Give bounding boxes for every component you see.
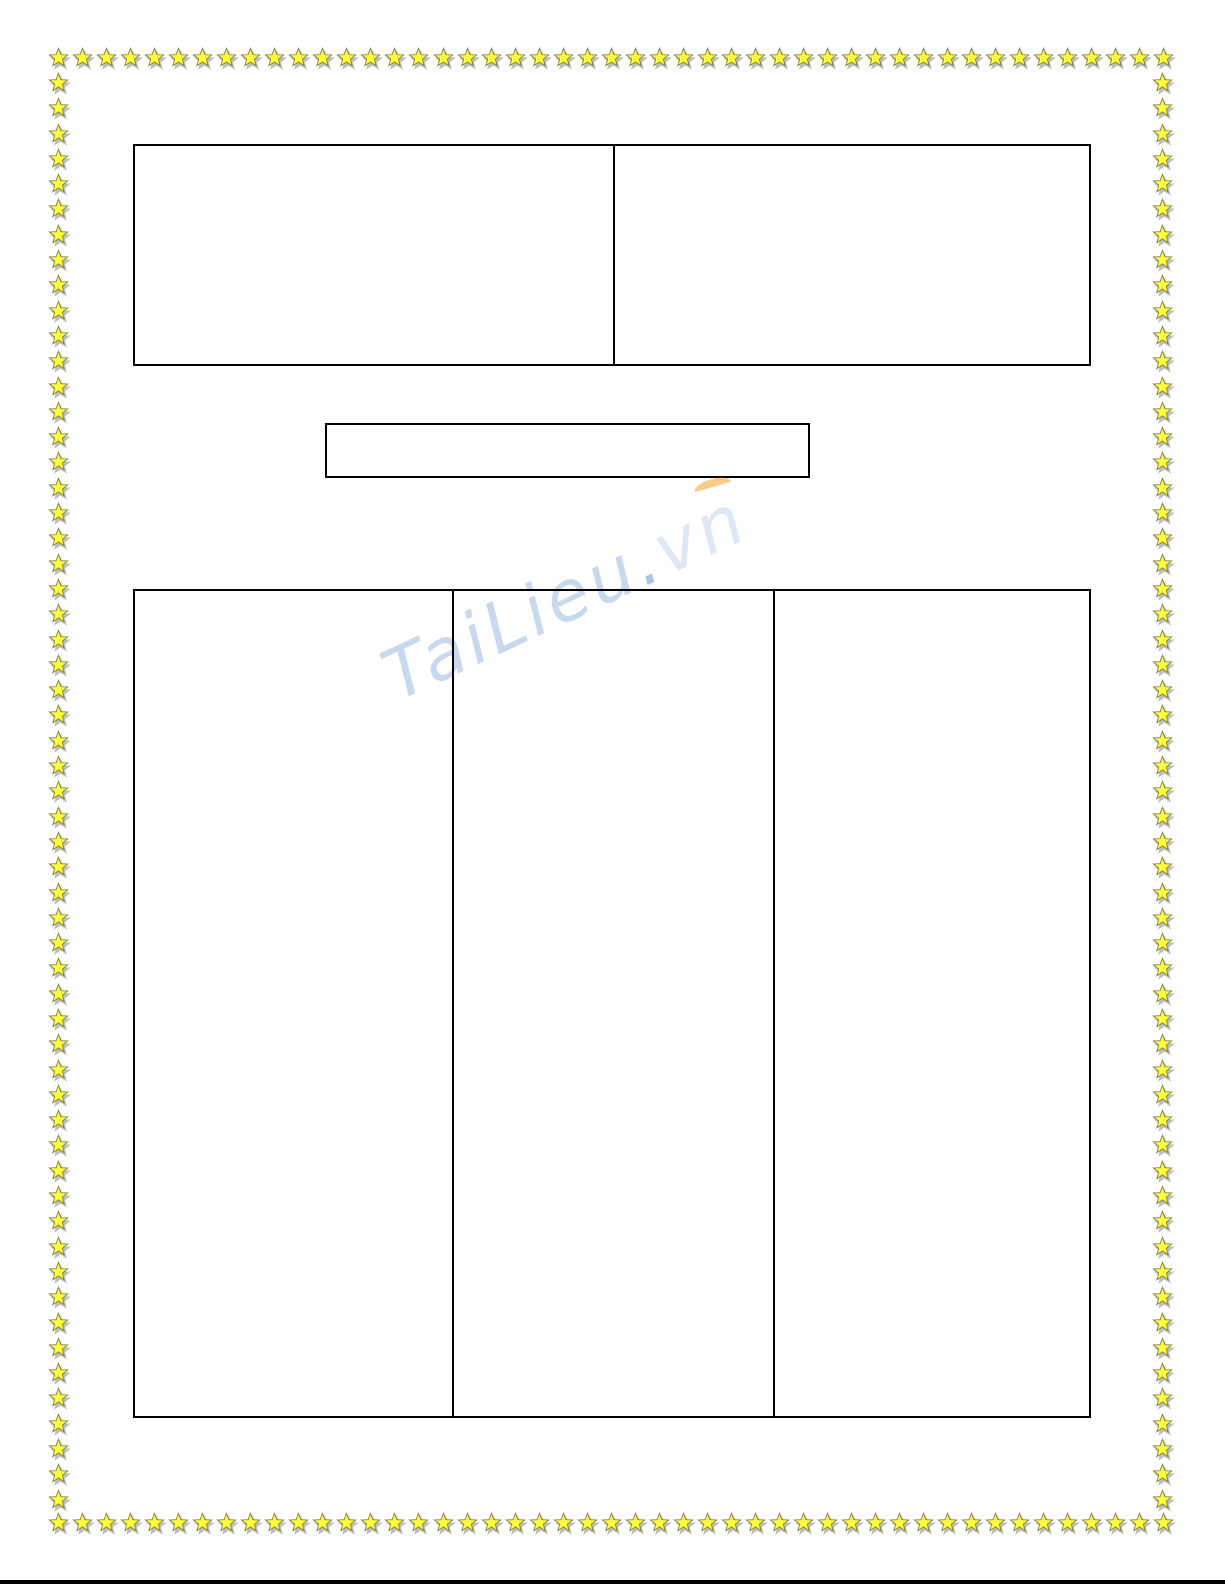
star-icon — [649, 47, 670, 68]
star-icon — [1152, 1337, 1173, 1358]
star-icon — [48, 629, 69, 650]
star-icon — [48, 1261, 69, 1282]
star-icon — [625, 1512, 646, 1533]
star-icon — [1152, 350, 1173, 371]
star-icon — [264, 47, 285, 68]
main-table-cell-2 — [454, 591, 775, 1416]
star-icon — [336, 1512, 357, 1533]
star-icon — [1152, 1362, 1173, 1383]
star-icon — [1152, 780, 1173, 801]
star-icon — [48, 1312, 69, 1333]
star-icon — [1152, 932, 1173, 953]
star-icon — [769, 47, 790, 68]
star-icon — [889, 1512, 910, 1533]
star-icon — [48, 1134, 69, 1155]
star-icon — [1129, 1512, 1150, 1533]
star-icon — [673, 1512, 694, 1533]
star-icon — [48, 173, 69, 194]
star-icon — [553, 1512, 574, 1533]
star-icon — [48, 1337, 69, 1358]
star-border-top — [48, 47, 1175, 68]
star-icon — [745, 1512, 766, 1533]
main-table — [133, 589, 1091, 1418]
star-icon — [889, 47, 910, 68]
star-icon — [192, 1512, 213, 1533]
star-icon — [529, 47, 550, 68]
star-icon — [48, 882, 69, 903]
star-icon — [48, 983, 69, 1004]
star-icon — [48, 704, 69, 725]
star-icon — [48, 1084, 69, 1105]
star-icon — [48, 932, 69, 953]
star-icon — [961, 47, 982, 68]
star-icon — [48, 1512, 69, 1533]
star-icon — [48, 679, 69, 700]
star-icon — [216, 47, 237, 68]
star-icon — [673, 47, 694, 68]
star-icon — [1152, 679, 1173, 700]
star-icon — [1152, 831, 1173, 852]
star-icon — [985, 47, 1006, 68]
star-icon — [1153, 47, 1174, 68]
star-icon — [48, 1210, 69, 1231]
star-icon — [48, 1033, 69, 1054]
header-table-cell-right — [615, 146, 1089, 364]
star-icon — [48, 350, 69, 371]
star-icon — [1152, 477, 1173, 498]
star-icon — [529, 1512, 550, 1533]
star-icon — [1152, 1387, 1173, 1408]
star-icon — [1152, 957, 1173, 978]
star-icon — [1152, 1438, 1173, 1459]
star-icon — [48, 957, 69, 978]
star-icon — [1152, 426, 1173, 447]
star-icon — [264, 1512, 285, 1533]
star-icon — [168, 47, 189, 68]
main-table-cell-3 — [775, 591, 1089, 1416]
star-icon — [1152, 376, 1173, 397]
star-icon — [1152, 325, 1173, 346]
star-icon — [649, 1512, 670, 1533]
star-icon — [1152, 1185, 1173, 1206]
star-icon — [841, 1512, 862, 1533]
star-icon — [288, 1512, 309, 1533]
star-icon — [48, 376, 69, 397]
star-icon — [577, 1512, 598, 1533]
star-icon — [1152, 123, 1173, 144]
star-icon — [1152, 1033, 1173, 1054]
star-icon — [1152, 97, 1173, 118]
star-icon — [1152, 1160, 1173, 1181]
star-icon — [48, 97, 69, 118]
star-icon — [433, 1512, 454, 1533]
star-icon — [1105, 1512, 1126, 1533]
star-icon — [48, 123, 69, 144]
star-icon — [1152, 502, 1173, 523]
star-icon — [360, 1512, 381, 1533]
star-icon — [1129, 47, 1150, 68]
header-table-cell-left — [135, 146, 615, 364]
star-icon — [505, 1512, 526, 1533]
star-icon — [48, 755, 69, 776]
star-icon — [48, 806, 69, 827]
star-icon — [1152, 704, 1173, 725]
star-icon — [192, 47, 213, 68]
star-icon — [48, 274, 69, 295]
star-icon — [48, 1185, 69, 1206]
main-table-cell-1 — [135, 591, 454, 1416]
star-icon — [384, 47, 405, 68]
star-icon — [1081, 1512, 1102, 1533]
star-icon — [1152, 882, 1173, 903]
star-icon — [1152, 1236, 1173, 1257]
star-icon — [1152, 1286, 1173, 1307]
star-icon — [1152, 1463, 1173, 1484]
star-icon — [553, 47, 574, 68]
star-icon — [48, 1413, 69, 1434]
star-icon — [216, 1512, 237, 1533]
star-icon — [408, 1512, 429, 1533]
star-icon — [865, 1512, 886, 1533]
star-icon — [48, 198, 69, 219]
star-icon — [48, 1008, 69, 1029]
star-icon — [1152, 148, 1173, 169]
star-icon — [48, 1160, 69, 1181]
star-icon — [1009, 47, 1030, 68]
star-icon — [433, 47, 454, 68]
star-icon — [937, 1512, 958, 1533]
star-icon — [336, 47, 357, 68]
star-icon — [1152, 274, 1173, 295]
star-icon — [1152, 983, 1173, 1004]
star-icon — [144, 47, 165, 68]
star-icon — [1153, 1512, 1174, 1533]
star-icon — [745, 47, 766, 68]
star-icon — [1152, 527, 1173, 548]
star-icon — [240, 47, 261, 68]
star-icon — [961, 1512, 982, 1533]
watermark-text-suffix: vn — [640, 477, 760, 591]
star-icon — [505, 47, 526, 68]
star-icon — [48, 553, 69, 574]
star-icon — [288, 47, 309, 68]
star-icon — [144, 1512, 165, 1533]
star-icon — [1152, 629, 1173, 650]
star-icon — [72, 47, 93, 68]
star-icon — [48, 730, 69, 751]
star-icon — [168, 1512, 189, 1533]
star-icon — [48, 831, 69, 852]
star-icon — [48, 603, 69, 624]
star-icon — [721, 47, 742, 68]
star-icon — [1057, 1512, 1078, 1533]
star-icon — [48, 1362, 69, 1383]
star-icon — [1152, 173, 1173, 194]
star-icon — [384, 1512, 405, 1533]
star-icon — [48, 401, 69, 422]
star-icon — [1152, 198, 1173, 219]
star-icon — [481, 47, 502, 68]
star-icon — [48, 502, 69, 523]
star-icon — [817, 1512, 838, 1533]
star-icon — [1105, 47, 1126, 68]
star-icon — [1152, 907, 1173, 928]
star-icon — [48, 325, 69, 346]
star-icon — [48, 1438, 69, 1459]
star-icon — [769, 1512, 790, 1533]
star-icon — [1152, 755, 1173, 776]
star-icon — [48, 1489, 69, 1510]
star-icon — [1152, 856, 1173, 877]
star-icon — [1152, 578, 1173, 599]
star-icon — [48, 527, 69, 548]
star-icon — [601, 47, 622, 68]
star-icon — [457, 47, 478, 68]
star-icon — [1152, 401, 1173, 422]
star-icon — [1152, 654, 1173, 675]
star-icon — [48, 1286, 69, 1307]
star-icon — [48, 300, 69, 321]
star-icon — [48, 224, 69, 245]
star-icon — [312, 47, 333, 68]
star-icon — [72, 1512, 93, 1533]
star-icon — [48, 1109, 69, 1130]
star-icon — [985, 1512, 1006, 1533]
star-icon — [48, 578, 69, 599]
star-icon — [1152, 806, 1173, 827]
star-icon — [48, 1463, 69, 1484]
star-icon — [96, 47, 117, 68]
star-icon — [913, 47, 934, 68]
star-icon — [1152, 730, 1173, 751]
star-icon — [48, 451, 69, 472]
star-border-left — [48, 72, 69, 1510]
document-page: TaiLieu.vn — [0, 0, 1225, 1585]
star-icon — [48, 249, 69, 270]
star-icon — [793, 1512, 814, 1533]
star-icon — [697, 1512, 718, 1533]
star-icon — [48, 148, 69, 169]
star-icon — [312, 1512, 333, 1533]
star-icon — [577, 47, 598, 68]
star-icon — [481, 1512, 502, 1533]
star-icon — [1152, 1489, 1173, 1510]
star-icon — [1152, 1312, 1173, 1333]
star-border-right — [1152, 72, 1173, 1510]
star-icon — [1009, 1512, 1030, 1533]
star-icon — [1033, 1512, 1054, 1533]
star-icon — [96, 1512, 117, 1533]
star-icon — [240, 1512, 261, 1533]
star-icon — [408, 47, 429, 68]
page-bottom-rule — [0, 1580, 1225, 1584]
star-icon — [457, 1512, 478, 1533]
star-icon — [1152, 1008, 1173, 1029]
star-icon — [1152, 224, 1173, 245]
star-icon — [120, 1512, 141, 1533]
star-icon — [120, 47, 141, 68]
star-icon — [1081, 47, 1102, 68]
star-icon — [1152, 72, 1173, 93]
star-icon — [913, 1512, 934, 1533]
star-icon — [793, 47, 814, 68]
star-icon — [937, 47, 958, 68]
star-icon — [48, 856, 69, 877]
star-icon — [48, 907, 69, 928]
star-icon — [360, 47, 381, 68]
star-icon — [625, 47, 646, 68]
star-icon — [1152, 1210, 1173, 1231]
star-icon — [48, 1059, 69, 1080]
star-icon — [48, 47, 69, 68]
star-icon — [48, 780, 69, 801]
star-icon — [1152, 553, 1173, 574]
star-icon — [1152, 1109, 1173, 1130]
star-border-bottom — [48, 1512, 1175, 1533]
star-icon — [1152, 1134, 1173, 1155]
star-icon — [721, 1512, 742, 1533]
star-icon — [1152, 603, 1173, 624]
star-icon — [1152, 451, 1173, 472]
star-icon — [601, 1512, 622, 1533]
star-icon — [1152, 1261, 1173, 1282]
star-icon — [48, 1387, 69, 1408]
star-icon — [865, 47, 886, 68]
star-icon — [1057, 47, 1078, 68]
star-icon — [48, 1236, 69, 1257]
star-icon — [1152, 1059, 1173, 1080]
title-box — [325, 423, 810, 478]
star-icon — [817, 47, 838, 68]
star-icon — [841, 47, 862, 68]
star-icon — [48, 72, 69, 93]
star-icon — [48, 426, 69, 447]
star-icon — [48, 477, 69, 498]
star-icon — [697, 47, 718, 68]
star-icon — [1152, 1413, 1173, 1434]
star-icon — [48, 654, 69, 675]
star-icon — [1152, 1084, 1173, 1105]
star-icon — [1033, 47, 1054, 68]
header-table — [133, 144, 1091, 366]
star-icon — [1152, 249, 1173, 270]
star-icon — [1152, 300, 1173, 321]
